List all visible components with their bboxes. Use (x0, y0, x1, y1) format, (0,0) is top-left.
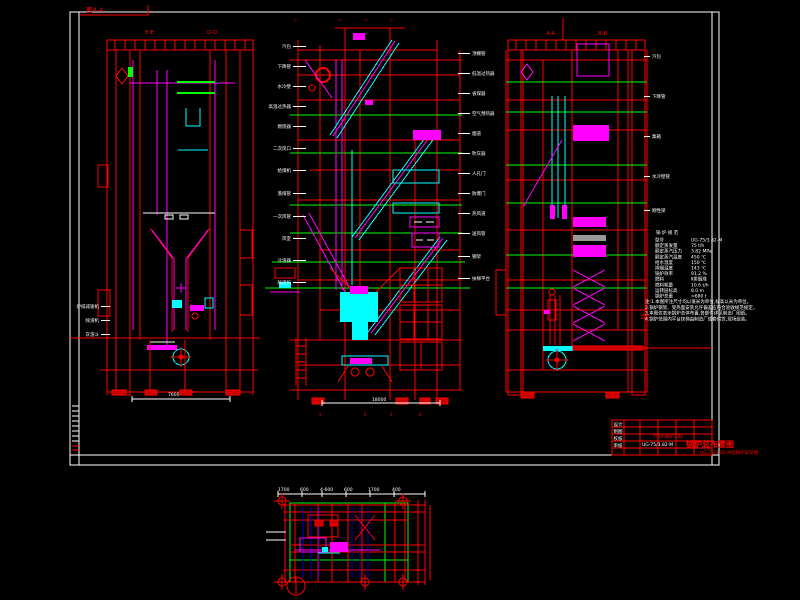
spec-row-label: 燃料耗量 (655, 281, 673, 288)
callout-label: 灰渣斗 (86, 331, 100, 338)
axis-label: 1 (319, 412, 322, 418)
view-right-section: A-A B-B (496, 18, 712, 398)
callout-label: 除渣机 (86, 317, 100, 324)
elevation-mark: ▽ (338, 19, 342, 24)
callout-label: 刚性梁 (652, 207, 666, 214)
view-left-section: E-E D-D (70, 30, 260, 402)
view-plan-bottom: 17006004-6006001700400 (266, 487, 430, 595)
plan-dim-text: 1700 (278, 487, 290, 493)
title-block-cell: 审核 (614, 442, 623, 449)
axis-label: 4 (419, 412, 422, 418)
callout-label: 人孔门 (472, 170, 486, 177)
callout-label: 二次风口 (273, 145, 291, 152)
callout-label: 燃烧器 (278, 123, 292, 130)
spec-row-value: Ⅱ类烟煤 (691, 276, 707, 283)
plan-dim-text: 1700 (368, 487, 380, 493)
plan-dim-text: 600 (344, 487, 353, 493)
dim-left-view: 7600 (168, 392, 180, 398)
callout-label: 汽包 (282, 43, 291, 50)
callout-label: 下降管 (652, 93, 666, 100)
view-middle-elevation: 18000 ▽▽▽▽1234汽包下降管水冷壁高温过热器燃烧器二次风口给煤机落煤管… (265, 19, 495, 418)
callout-label: 下降管 (278, 63, 292, 70)
spec-row-label: 排烟温度 (655, 265, 673, 272)
callout-label: 吹灰器 (472, 150, 486, 157)
title-block-cell: 设计 (614, 421, 623, 428)
title-block-project: 75t/h锅炉工程 (653, 433, 683, 440)
spec-row-value: 91.2 % (691, 271, 707, 277)
figure-label-box: 图4-4 (80, 5, 148, 15)
figure-label: 图4-4 (86, 6, 103, 14)
note-line: 4.锅炉范围内平台扶梯由制造厂成套供货,现场组装。 (645, 315, 750, 322)
callout-label: 低温过热器 (472, 70, 495, 77)
section-label-ee: E-E (145, 30, 154, 36)
callout-label: 给煤机 (278, 167, 292, 174)
spec-row-value: 150 ℃ (691, 260, 706, 266)
spec-row-value: UG-75/3.82-M (691, 238, 722, 244)
spec-row-label: 锅炉效率 (655, 270, 673, 277)
cad-drawing-canvas: 图4-4 E-E D-D (0, 0, 800, 600)
section-label-bb: B-B (598, 31, 608, 37)
callout-label: 落煤管 (278, 190, 292, 197)
callout-label: 顶棚管 (472, 50, 486, 57)
section-label-dd: D-D (207, 30, 217, 36)
callout-label: 风室 (282, 235, 291, 242)
axis-label: 2 (364, 412, 367, 418)
title-block-cell: 校核 (614, 435, 623, 442)
spec-row-label: 燃料 (655, 276, 664, 283)
drawing-title: 锅炉总布置图 (685, 439, 734, 449)
spec-row-value: 8.0 m (691, 288, 704, 294)
plan-dim-text: 4-600 (320, 487, 333, 493)
spec-table-title: 锅 炉 规 范 (656, 229, 679, 236)
callout-label: 省煤器 (472, 90, 486, 97)
spec-row-value: 143 ℃ (691, 266, 706, 272)
spec-row-label: 运转层标高 (655, 287, 678, 294)
note-line: 注:1.本图所注尺寸均以毫米为单位,标高以米为单位。 (645, 298, 751, 305)
dim-middle-view: 18000 (372, 397, 386, 403)
callout-label: 空气预热器 (472, 110, 495, 117)
notes-block: 注:1.本图所注尺寸均以毫米为单位,标高以米为单位。2.锅炉钢架、受热面安装允许… (645, 298, 757, 322)
axis-label: 3 (390, 412, 393, 418)
callout-label: 水冷壁管 (652, 173, 670, 180)
spec-row-label: 额定蒸发量 (655, 242, 678, 249)
callout-label: 高温过热器 (269, 103, 292, 110)
elevation-mark: ▽ (389, 19, 393, 24)
title-block-cell: 制图 (614, 428, 623, 435)
elevation-mark: ▽ (293, 19, 297, 24)
plan-dim-text: 600 (300, 487, 309, 493)
callout-label: 防爆门 (472, 190, 486, 197)
spec-row-value: 450 ℃ (691, 254, 706, 260)
note-line: 3.本图仅表示锅炉总体布置,各部件详见制造厂图纸。 (645, 310, 750, 317)
drawing-subtitle: UG-75/3.82-M型锅炉安装图 (700, 449, 759, 456)
spec-row-label: 额定蒸汽压力 (655, 248, 682, 255)
callout-label: 钢架 (472, 253, 481, 260)
callout-label: 汽包 (652, 53, 661, 60)
spec-row-value: 3.82 MPa (691, 249, 712, 255)
spec-row-value: 10.6 t/h (691, 282, 709, 288)
spec-row-label: 锅炉总重 (655, 293, 673, 300)
callout-label: 水冷壁 (278, 83, 292, 90)
callout-label: 热风道 (472, 210, 486, 217)
callout-label: 集箱 (652, 133, 661, 140)
elevation-mark: ▽ (364, 19, 368, 24)
spec-row-value: ≈680 t (691, 294, 707, 300)
callout-label: 冷渣器 (278, 257, 292, 264)
callout-label: 炉排减速机 (77, 303, 100, 310)
note-line: 2.锅炉钢架、受热面安装允许偏差应符合验收规范规定。 (645, 304, 757, 311)
callout-label: 扶梯平台 (472, 275, 490, 282)
callout-label: 烟道 (472, 130, 481, 137)
callout-label: 一次风管 (273, 213, 291, 220)
plan-dim-text: 400 (392, 487, 401, 493)
section-label-aa: A-A (546, 31, 556, 37)
title-block: 75t/h锅炉工程 UG-75/3.82-M 锅炉总布置图 UG-75/3.82… (612, 420, 759, 456)
spec-row-label: 给水温度 (655, 259, 673, 266)
callout-label: 送风管 (472, 230, 486, 237)
title-block-model: UG-75/3.82-M (642, 442, 673, 448)
callout-label: 除渣机 (278, 279, 292, 286)
spec-row-label: 额定蒸汽温度 (655, 253, 682, 260)
spec-row-label: 型号 (655, 237, 664, 244)
spec-row-value: 75 t/h (691, 243, 704, 249)
